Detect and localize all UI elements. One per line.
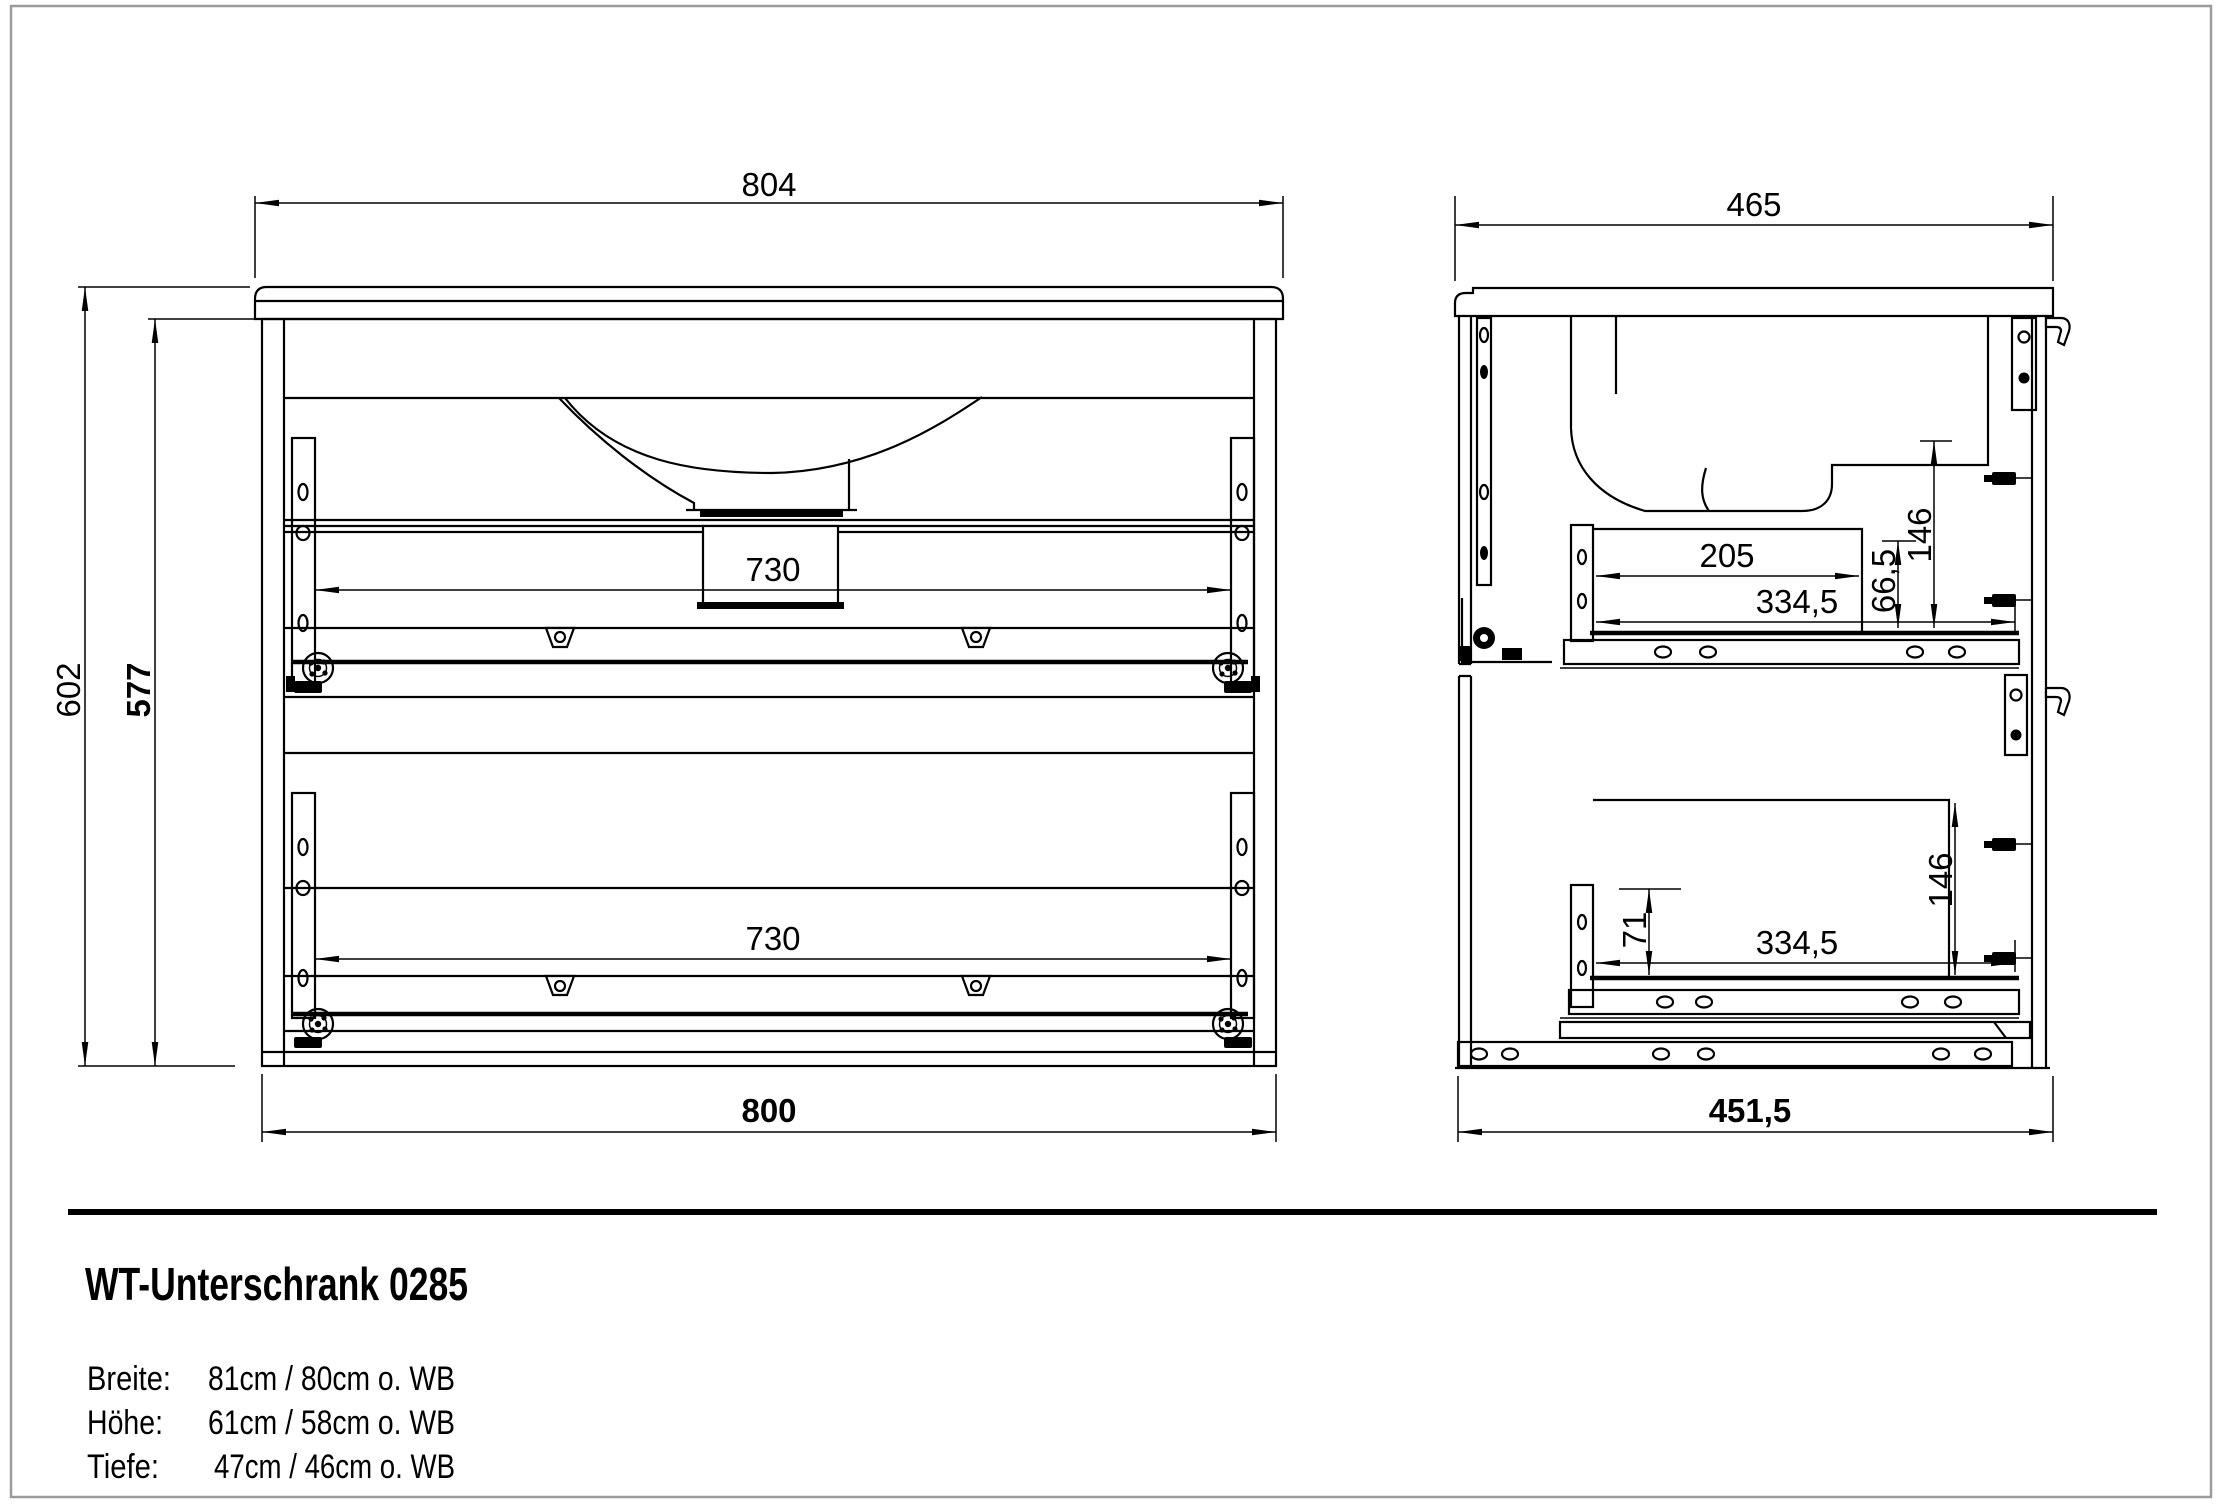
dim-577: 577 (120, 319, 258, 1066)
dim-146-bottom-label: 146 (1922, 852, 1959, 907)
dim-602-label: 602 (50, 662, 87, 717)
spec-label: Höhe: (87, 1404, 163, 1442)
spec-label: Breite: (87, 1360, 171, 1398)
spec-value: 81cm / 80cm o. WB (208, 1360, 455, 1398)
spec-row-hoehe: Höhe: 61cm / 58cm o. WB (87, 1404, 455, 1442)
side-view: 465 (1455, 186, 2070, 1142)
dim-804: 804 (255, 166, 1283, 278)
front-panel-side (1459, 316, 1491, 1068)
dim-451-5: 451,5 (1458, 1076, 2053, 1142)
dim-800: 800 (262, 1074, 1276, 1142)
dim-66-5-label: 66,5 (1865, 549, 1902, 613)
dim-146-top-label: 146 (1901, 507, 1938, 562)
wall-hook-mid (2046, 688, 2070, 715)
drawer-rail-right (1231, 438, 1254, 690)
drawing-page: 804 730 (0, 0, 2223, 1510)
countertop-side (1455, 288, 2053, 316)
dim-730-bottom-label: 730 (745, 920, 800, 957)
spec-row-breite: Breite: 81cm / 80cm o. WB (87, 1360, 455, 1398)
front-view: 804 730 (50, 166, 1283, 1142)
drawer-2-side: 71 146 334,5 (1455, 800, 2050, 1068)
spec-row-tiefe: Tiefe: 47cm / 46cm o. WB (87, 1448, 455, 1486)
drawer-1-side: 205 334,5 66,5 146 (1460, 441, 2019, 668)
wall-hook-top (2046, 318, 2070, 345)
spec-label: Tiefe: (87, 1448, 159, 1486)
siphon-base (700, 511, 843, 517)
connector-screws (1984, 472, 2032, 965)
drawer-rail-left (292, 438, 315, 690)
dim-577-label: 577 (120, 662, 157, 717)
front-roller-bracket (1460, 598, 1552, 662)
drawer-rail-left (292, 793, 315, 1018)
dim-205-label: 205 (1699, 537, 1754, 574)
title-block: WT-Unterschrank 0285 Breite: 81cm / 80cm… (68, 1209, 2157, 1486)
dim-465-label: 465 (1726, 186, 1781, 223)
countertop-front (255, 287, 1283, 319)
spec-value: 61cm / 58cm o. WB (208, 1404, 455, 1442)
dim-465: 465 (1455, 186, 2053, 281)
drawing-title: WT-Unterschrank 0285 (85, 1258, 468, 1310)
dim-451-5-label: 451,5 (1709, 1092, 1792, 1129)
washbasin-side (1571, 316, 1988, 511)
drawer-rail-right (1231, 793, 1254, 1018)
wall-bracket-mid (2005, 675, 2027, 755)
drawer-1-front: 730 (284, 438, 1260, 697)
drawer-2-front: 730 (284, 753, 1254, 1048)
dim-334-bottom-label: 334,5 (1756, 924, 1839, 961)
spec-value: 47cm / 46cm o. WB (214, 1448, 455, 1486)
separator-line (68, 1209, 2157, 1215)
bottom-slide-rail (1458, 1042, 2012, 1066)
dim-71-label: 71 (1616, 912, 1653, 949)
technical-drawing: 804 730 (0, 0, 2223, 1510)
back-panel-side (1984, 316, 2070, 1068)
washbasin-front (559, 397, 982, 517)
dim-804-label: 804 (741, 166, 796, 203)
dim-730-top-label: 730 (745, 551, 800, 588)
dim-334-top-label: 334,5 (1756, 583, 1839, 620)
dim-800-label: 800 (741, 1092, 796, 1129)
